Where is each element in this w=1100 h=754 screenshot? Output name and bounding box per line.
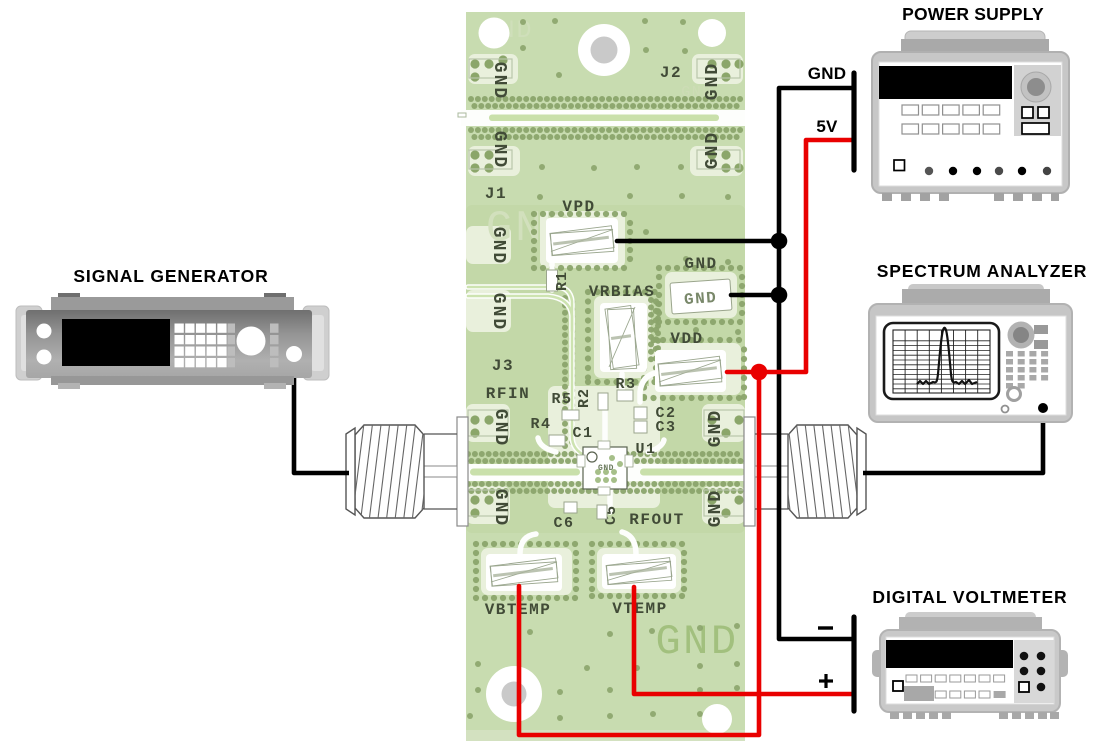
svg-text:RFIN: RFIN <box>486 385 530 403</box>
svg-text:GND: GND <box>684 255 717 273</box>
svg-text:5V: 5V <box>816 117 838 136</box>
svg-text:VPD: VPD <box>562 198 595 216</box>
svg-text:R4: R4 <box>530 416 551 433</box>
svg-text:GND: GND <box>683 289 717 309</box>
svg-text:GND: GND <box>490 489 510 527</box>
svg-text:SPECTRUM ANALYZER: SPECTRUM ANALYZER <box>877 261 1088 281</box>
svg-text:VRBIAS: VRBIAS <box>589 283 656 301</box>
svg-text:GND: GND <box>808 64 846 83</box>
svg-text:POWER SUPPLY: POWER SUPPLY <box>902 4 1044 24</box>
svg-text:VDD: VDD <box>670 330 703 348</box>
svg-text:C6: C6 <box>553 515 574 532</box>
svg-text:C3: C3 <box>655 419 676 436</box>
svg-text:GND: GND <box>706 409 726 447</box>
svg-text:J1: J1 <box>485 185 507 203</box>
svg-text:GND: GND <box>706 489 726 527</box>
svg-text:GND: GND <box>703 62 723 100</box>
svg-text:GND: GND <box>489 62 509 100</box>
svg-text:R5: R5 <box>551 391 572 408</box>
svg-text:GND: GND <box>598 464 614 473</box>
svg-text:R2: R2 <box>576 388 593 408</box>
svg-text:DIGITAL VOLTMETER: DIGITAL VOLTMETER <box>872 587 1067 607</box>
svg-text:R1: R1 <box>554 271 571 291</box>
svg-text:GND: GND <box>655 618 738 666</box>
svg-text:SIGNAL GENERATOR: SIGNAL GENERATOR <box>73 266 268 286</box>
svg-text:C1: C1 <box>572 425 593 442</box>
svg-text:GND: GND <box>488 227 508 265</box>
svg-text:RFOUT: RFOUT <box>629 511 685 529</box>
svg-text:GND: GND <box>489 131 509 169</box>
svg-text:GND: GND <box>488 293 508 331</box>
svg-text:VTEMP: VTEMP <box>612 600 668 618</box>
svg-text:GND: GND <box>703 131 723 169</box>
svg-text:J3: J3 <box>492 357 514 375</box>
svg-text:U1: U1 <box>635 441 656 458</box>
svg-text:J2: J2 <box>660 64 682 82</box>
svg-text:GND: GND <box>490 409 510 447</box>
